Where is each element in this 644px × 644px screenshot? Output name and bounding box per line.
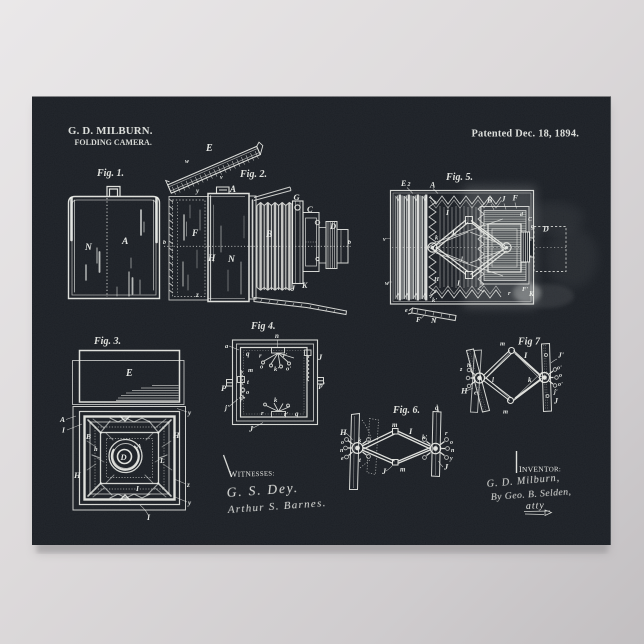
svg-text:j': j' — [553, 389, 558, 396]
svg-text:D: D — [329, 221, 336, 231]
svg-text:b: b — [163, 240, 166, 246]
svg-text:Fig 4.: Fig 4. — [250, 321, 275, 332]
svg-text:v: v — [383, 237, 386, 243]
svg-text:J: J — [443, 462, 449, 472]
svg-text:o': o' — [557, 366, 562, 372]
svg-text:G. D. MILBURN.: G. D. MILBURN. — [68, 125, 153, 137]
svg-text:H: H — [73, 470, 81, 480]
svg-text:A: A — [136, 443, 142, 450]
svg-text:G: G — [294, 192, 301, 202]
svg-text:g: g — [530, 224, 534, 230]
svg-text:q: q — [435, 404, 439, 412]
svg-text:A: A — [121, 237, 128, 247]
svg-text:Patented Dec. 18, 1894.: Patented Dec. 18, 1894. — [472, 129, 580, 140]
svg-text:t: t — [359, 457, 361, 464]
svg-text:v: v — [220, 175, 223, 181]
svg-text:F: F — [512, 194, 519, 203]
svg-text:E: E — [205, 143, 213, 154]
svg-text:o': o' — [286, 366, 291, 373]
svg-text:h: h — [94, 446, 98, 453]
svg-text:I: I — [408, 426, 413, 436]
svg-text:C: C — [307, 204, 313, 214]
svg-text:l: l — [492, 376, 494, 384]
svg-text:e: e — [474, 391, 477, 397]
svg-text:J: J — [248, 424, 254, 434]
svg-text:K: K — [301, 281, 308, 290]
svg-text:m: m — [503, 409, 508, 416]
svg-text:atty: atty — [526, 500, 546, 512]
svg-text:Fig. 2.: Fig. 2. — [239, 169, 267, 180]
svg-text:F: F — [191, 229, 199, 239]
svg-text:Fig. 1.: Fig. 1. — [96, 168, 124, 179]
svg-text:k': k' — [274, 366, 279, 373]
svg-text:B: B — [486, 196, 493, 205]
svg-text:m: m — [400, 466, 406, 474]
svg-text:L: L — [451, 229, 456, 237]
svg-text:I: I — [523, 350, 528, 360]
svg-text:z: z — [186, 481, 190, 489]
svg-text:E: E — [125, 368, 133, 379]
svg-text:e: e — [341, 456, 344, 462]
svg-text:y: y — [449, 456, 453, 462]
svg-text:o': o' — [558, 382, 563, 388]
svg-text:r': r' — [283, 352, 288, 359]
svg-text:E: E — [400, 179, 406, 188]
svg-text:2: 2 — [407, 182, 411, 188]
svg-text:m: m — [500, 341, 505, 348]
svg-text:j': j' — [224, 404, 229, 412]
svg-text:H: H — [172, 430, 180, 440]
svg-text:o: o — [559, 373, 562, 379]
svg-text:k': k' — [422, 434, 427, 441]
svg-text:A: A — [229, 184, 236, 194]
svg-text:z: z — [195, 291, 199, 299]
svg-text:N: N — [430, 316, 437, 325]
svg-text:A: A — [59, 415, 65, 424]
svg-text:Fig. 5.: Fig. 5. — [445, 172, 473, 183]
svg-text:F': F' — [522, 286, 528, 293]
svg-text:B: B — [265, 230, 272, 240]
svg-text:o: o — [341, 440, 344, 446]
svg-text:N: N — [227, 255, 236, 265]
svg-text:H: H — [339, 427, 347, 437]
svg-text:D: D — [120, 452, 127, 462]
svg-text:B: B — [85, 432, 91, 441]
svg-text:J: J — [317, 352, 323, 362]
svg-text:m: m — [392, 421, 398, 429]
svg-text:P: P — [221, 383, 227, 393]
svg-text:N: N — [84, 243, 93, 253]
svg-text:H: H — [207, 254, 216, 264]
svg-text:t: t — [247, 379, 249, 386]
svg-text:Fig 7: Fig 7 — [517, 337, 541, 348]
svg-text:r': r' — [284, 411, 289, 418]
svg-text:k: k — [528, 376, 532, 384]
svg-text:FOLDING CAMERA.: FOLDING CAMERA. — [75, 138, 152, 147]
svg-text:J': J' — [557, 351, 564, 360]
svg-text:F: F — [416, 315, 421, 324]
svg-text:Fig. 6.: Fig. 6. — [392, 405, 420, 416]
svg-text:p': p' — [318, 381, 325, 390]
svg-text:Fig. 3.: Fig. 3. — [93, 336, 121, 347]
svg-text:q: q — [295, 410, 299, 418]
svg-text:H: H — [433, 276, 440, 283]
svg-text:q: q — [246, 350, 250, 358]
svg-text:o: o — [450, 440, 453, 446]
svg-text:k': k' — [432, 297, 437, 304]
svg-text:n: n — [275, 332, 279, 340]
svg-text:l: l — [461, 256, 463, 263]
svg-text:b: b — [348, 240, 351, 246]
svg-text:m: m — [248, 367, 253, 374]
svg-text:L: L — [159, 456, 165, 465]
svg-text:D: D — [542, 225, 549, 234]
svg-text:A: A — [429, 181, 436, 190]
svg-text:e: e — [405, 308, 408, 314]
